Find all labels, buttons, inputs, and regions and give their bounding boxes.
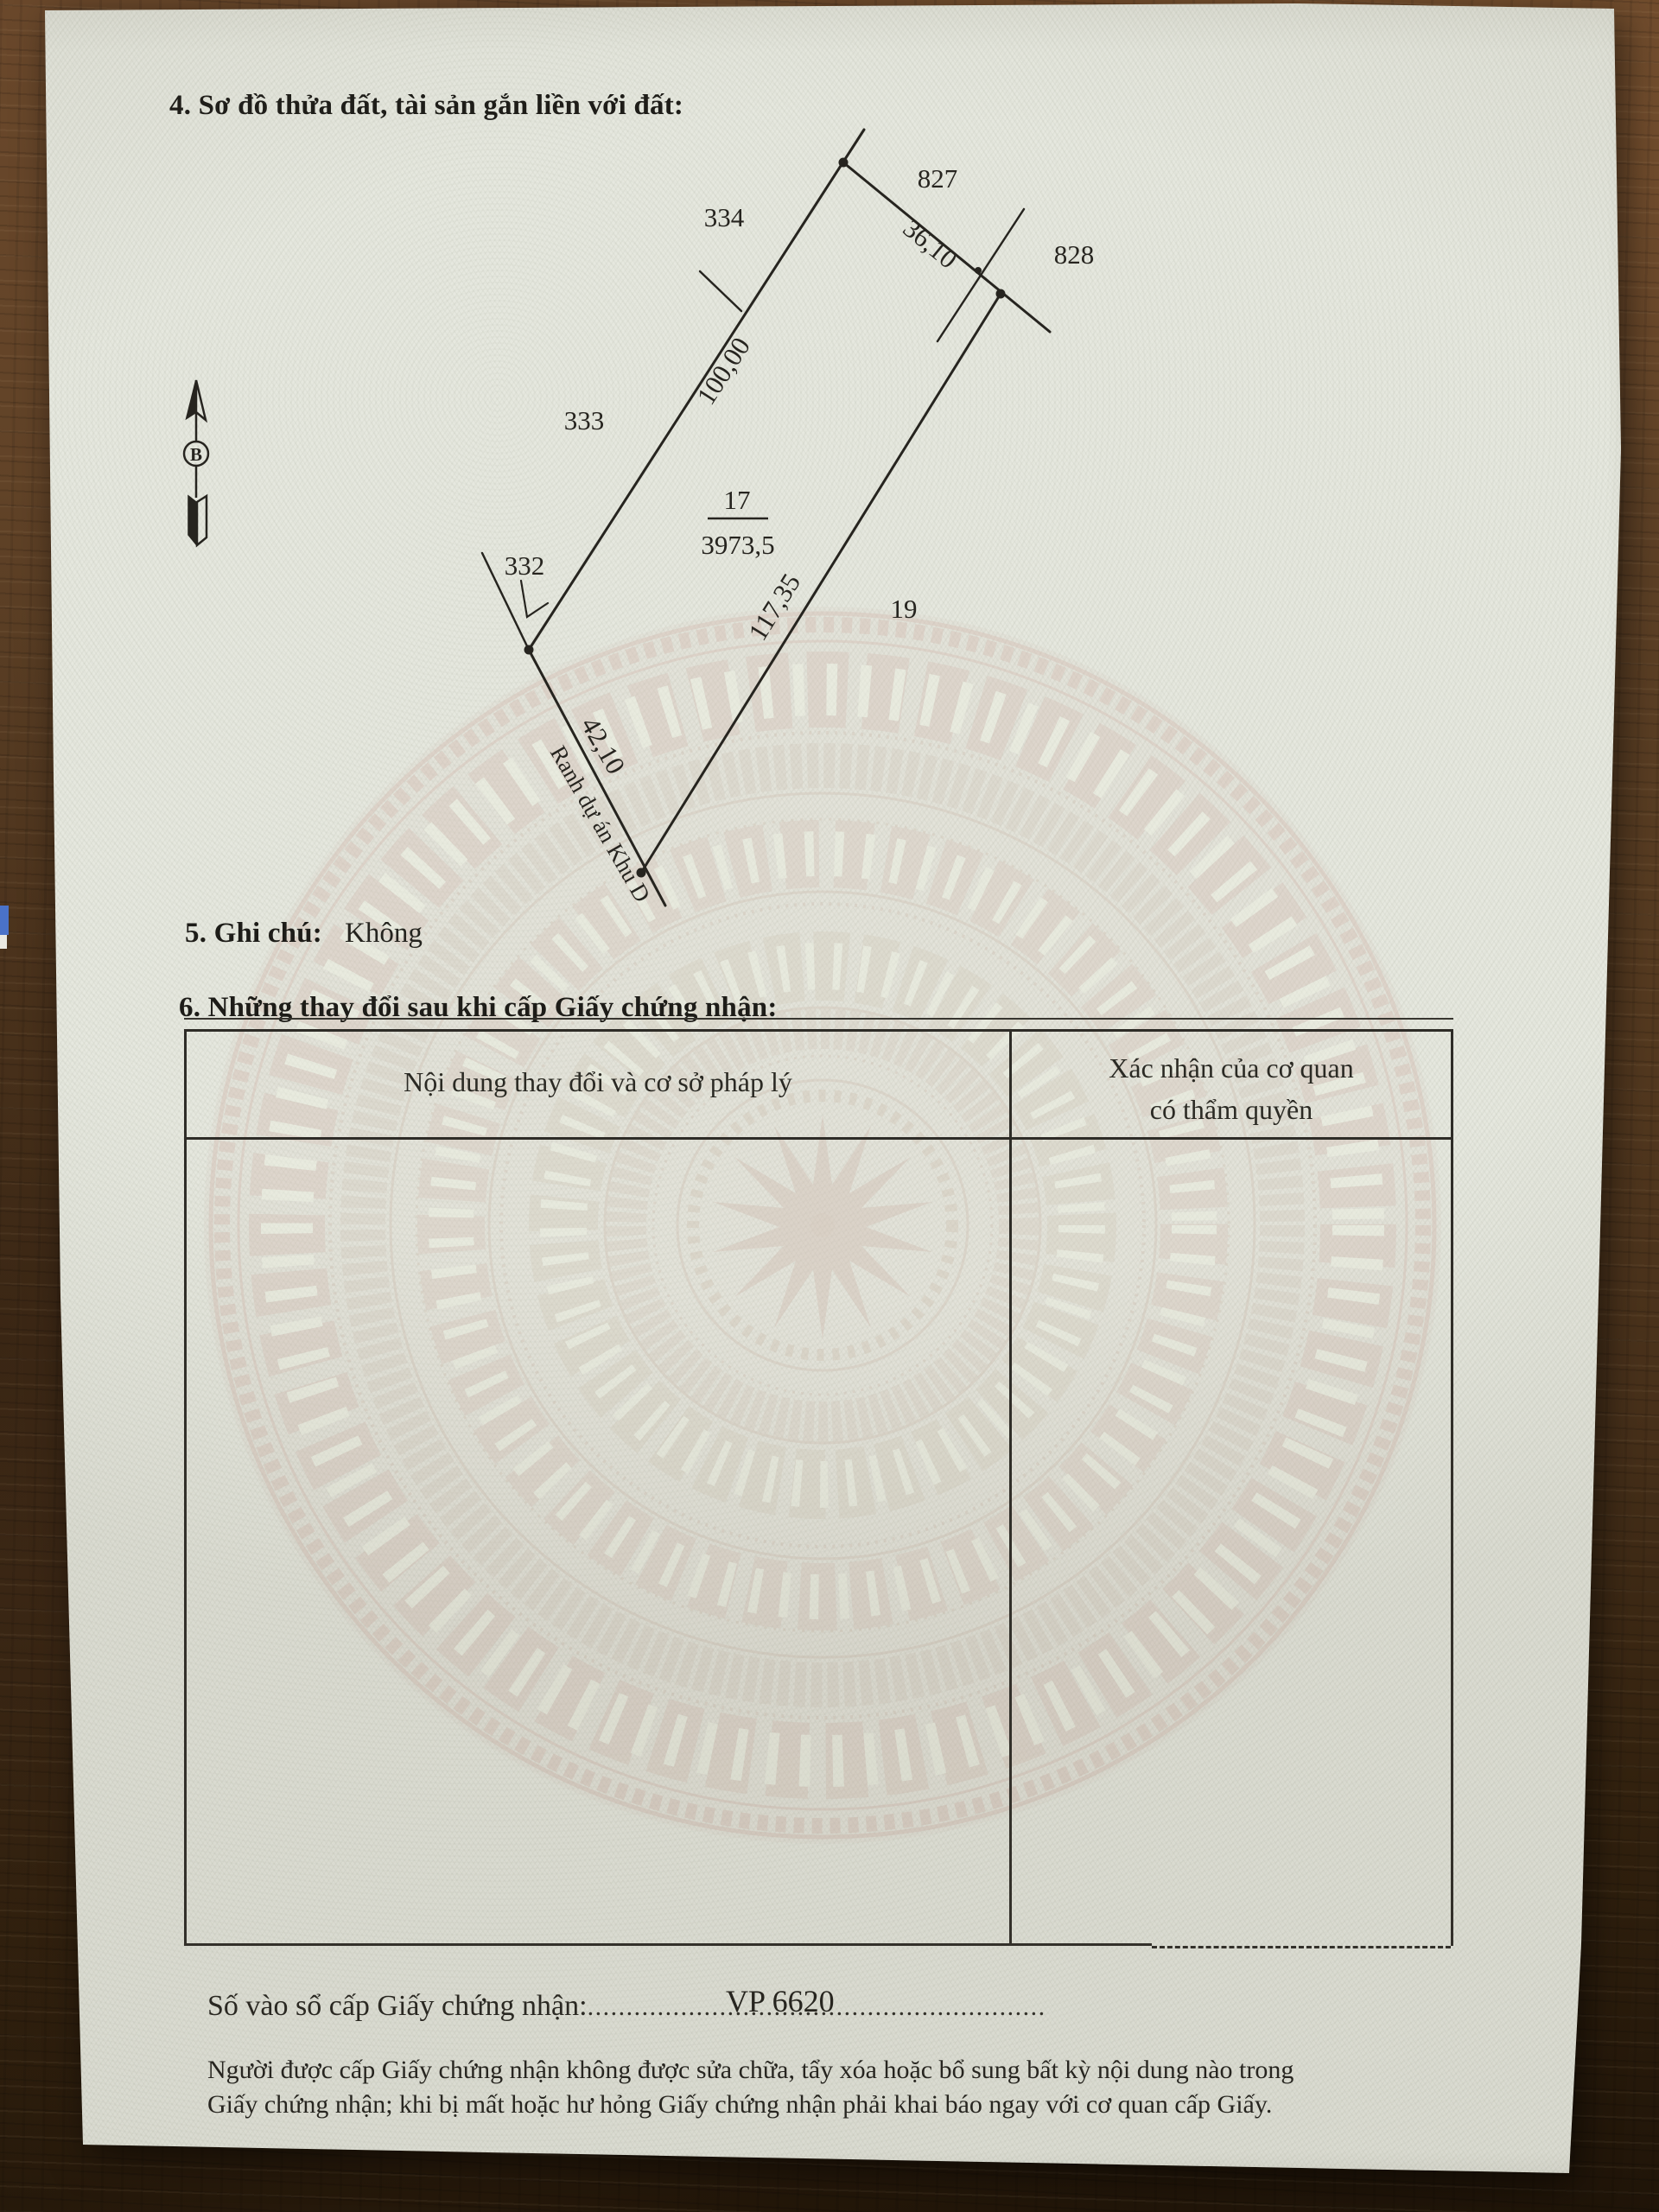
north-fletch-right	[197, 496, 207, 545]
edge-100m-line	[529, 130, 864, 650]
north-arrow-head-left	[187, 380, 196, 418]
paper-shadow-wrap: B 827 828 334 3	[0, 0, 1659, 2212]
tick-827-828	[975, 267, 982, 274]
table-col2-header-line1: Xác nhận của cơ quan	[1012, 1047, 1451, 1089]
footer-note-line1: Người được cấp Giấy chứng nhận không đượ…	[207, 2056, 1294, 2085]
parcel-number: 17	[724, 485, 751, 515]
drum-star	[713, 1115, 932, 1339]
table-col2-header-line2: có thẩm quyền	[1012, 1089, 1451, 1130]
table-header-divider	[187, 1137, 1451, 1140]
boundary-334-line	[700, 271, 741, 311]
north-circle	[184, 442, 208, 466]
plot-lines	[482, 130, 1050, 906]
neighbor-label-19: 19	[891, 594, 918, 624]
neighbor-label-333: 333	[564, 405, 605, 435]
neighbor-label-827: 827	[918, 163, 958, 194]
dim-42-10: 42,10	[575, 712, 632, 779]
label-332-leader	[521, 581, 548, 617]
table-column-divider	[1009, 1032, 1012, 1946]
boundary-note-label: Ranh dự án Khu D	[545, 741, 656, 906]
dim-117-35: 117,35	[742, 568, 806, 645]
neighbor-label-828: 828	[1054, 239, 1095, 270]
section6-underline	[184, 1018, 1453, 1020]
corner-a	[839, 158, 849, 168]
plot-corner-dots	[524, 158, 1006, 878]
edge-117m-line	[641, 294, 1001, 873]
photo-of-land-certificate-page: B 827 828 334 3	[0, 0, 1659, 2212]
section5-label: 5. Ghi chú:	[185, 918, 322, 949]
north-label: B	[190, 444, 202, 465]
north-fletch-left	[188, 496, 196, 544]
neighbor-label-334: 334	[704, 202, 745, 232]
section5-value: Không	[345, 918, 423, 949]
changes-table: Nội dung thay đổi và cơ sở pháp lý Xác n…	[184, 1029, 1453, 1946]
certificate-page: B 827 828 334 3	[0, 0, 1659, 2212]
boundary-332-line	[482, 553, 529, 650]
serial-value: VP 6620	[726, 1983, 835, 2019]
serial-dotted-leader: ........................................…	[588, 1993, 1046, 2021]
page-graphics: B 827 828 334 3	[0, 0, 1659, 2212]
footer-note-line2: Giấy chứng nhận; khi bị mất hoặc hư hỏng…	[207, 2090, 1272, 2120]
neighbor-label-332: 332	[505, 550, 545, 581]
edge-42m-line	[529, 650, 665, 906]
section6-title: 6. Những thay đổi sau khi cấp Giấy chứng…	[179, 992, 778, 1024]
drum-watermark	[204, 607, 1441, 1844]
north-arrow-head-right	[196, 380, 206, 420]
boundary-828-line	[938, 209, 1024, 341]
serial-row: Số vào sổ cấp Giấy chứng nhận:..........…	[207, 1990, 1046, 2023]
table-col1-header: Nội dung thay đổi và cơ sở pháp lý	[187, 1066, 1009, 1098]
table-col2-header: Xác nhận của cơ quan có thẩm quyền	[1012, 1047, 1451, 1130]
section4-title: 4. Sơ đồ thửa đất, tài sản gắn liền với …	[169, 90, 683, 122]
north-arrow	[184, 380, 208, 545]
dim-36-10: 36,10	[898, 213, 963, 274]
section5-row: 5. Ghi chú:Không	[185, 918, 423, 950]
table-bottom-border	[187, 1943, 1152, 1946]
dim-100-00: 100,00	[690, 332, 756, 410]
corner-d	[524, 645, 534, 655]
edge-36m-line	[843, 162, 1050, 332]
parcel-area: 3973,5	[701, 530, 774, 560]
corner-c	[637, 868, 646, 878]
table-bottom-border-dashed	[1152, 1946, 1451, 1948]
serial-label: Số vào sổ cấp Giấy chứng nhận:	[207, 1990, 588, 2022]
corner-b	[996, 289, 1006, 299]
